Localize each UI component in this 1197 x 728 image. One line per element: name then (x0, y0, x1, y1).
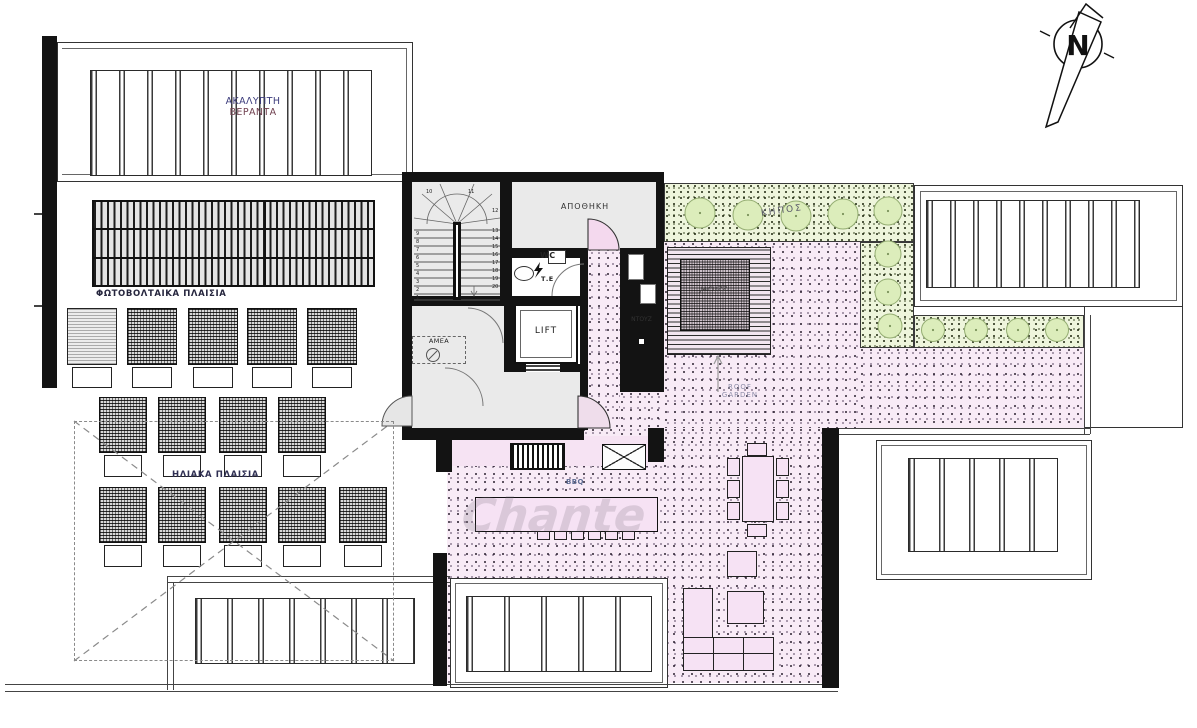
wall (402, 172, 664, 182)
dining-chair (776, 458, 789, 476)
coffee-table (727, 591, 764, 624)
corridor-ramp (588, 248, 620, 430)
stair-tread-number: 1 (416, 295, 419, 301)
wall (560, 364, 588, 372)
lounge-seat (683, 588, 713, 638)
wall (504, 306, 514, 366)
dining-chair (776, 480, 789, 498)
wc-label: WC (540, 251, 556, 260)
stair-tread-number: 4 (416, 271, 419, 277)
pv-divider (264, 200, 266, 287)
stair-tread-number: 5 (416, 263, 419, 269)
solar-panel-mount (132, 367, 172, 388)
roof-garden-east-strip (860, 348, 1084, 428)
stair-tread-number: 17 (492, 260, 498, 266)
roof-outline-dashed (74, 421, 394, 661)
stair-tread-number: 12 (492, 208, 498, 214)
boundary-line (1084, 315, 1085, 434)
roof-garden-label: ROOF GARDEN (710, 383, 770, 400)
solar-panel (127, 308, 177, 365)
veranda-label-line1: ΑΚΑΛΥΠΤΗ (178, 96, 328, 107)
boundary-line (5, 691, 838, 692)
roof-garden-area (664, 428, 822, 440)
wc-fixture (514, 266, 534, 281)
photovoltaic-label: ΦΩΤΟΒΟΛΤΑΙΚΑ ΠΛΑΙΣΙΑ (96, 289, 226, 299)
storage-room-floor (512, 182, 656, 248)
storage-label: ΑΠΟΘΗΚΗ (540, 202, 630, 211)
stair-tread-number: 18 (492, 268, 498, 274)
wall (822, 428, 839, 688)
dining-chair (776, 502, 789, 520)
boundary-line (838, 428, 1090, 429)
watermark: Chante (459, 488, 648, 542)
neighbour-block-ne-lower (1084, 307, 1183, 428)
roof-garden-label-line1: ROOF (710, 383, 770, 391)
dining-chair (727, 502, 740, 520)
jacuzzi-label: JACUZZI (681, 286, 749, 294)
stair-tread-number: 16 (492, 252, 498, 258)
roof-garden-label-line2: GARDEN (710, 391, 770, 399)
dining-chair (727, 458, 740, 476)
utility-niche (640, 284, 656, 304)
wall (580, 248, 588, 430)
photovoltaic-array (92, 200, 375, 287)
solar-panel-mount (312, 367, 352, 388)
wall (436, 430, 452, 472)
pv-divider (92, 257, 375, 259)
stair-tread-number: 15 (492, 244, 498, 250)
neighbour-s-deck (466, 596, 652, 672)
north-letter: N (1066, 29, 1089, 62)
neighbour-e-deck (908, 458, 1058, 552)
roof-floor-plan: N 1234567891011121314151617181920 ΑΚΑΛΥΠ… (0, 0, 1197, 728)
stair-tread-number: 19 (492, 276, 498, 282)
stair-tread-number: 8 (416, 239, 419, 245)
garden-strip-east (914, 315, 1084, 348)
north-arrow-icon: N (1040, 4, 1114, 127)
jacuzzi-basin (680, 259, 750, 331)
solar-panel (67, 308, 117, 365)
lift-door-line (526, 369, 560, 371)
solar-panel (188, 308, 238, 365)
wall (433, 553, 447, 686)
stair-tread-number: 3 (416, 279, 419, 285)
wall (42, 36, 57, 388)
neighbour-ne-deck (926, 200, 1140, 288)
lobby-floor (504, 372, 580, 428)
shower-label: ΝΤΟΥΖ (625, 316, 658, 323)
veranda-label: ΑΚΑΛΥΠΤΗ ΒΕΡΑΝΤΑ (178, 96, 328, 118)
garden-band-right (860, 242, 914, 348)
dining-chair (747, 524, 767, 537)
solar-panel-mount (72, 367, 112, 388)
lift-label: LIFT (520, 326, 572, 337)
wall (504, 364, 526, 372)
stair-tread-number: 2 (416, 287, 419, 293)
stair-tread-number: 14 (492, 236, 498, 242)
skylight-hatch (602, 444, 646, 470)
lift-door-line (526, 365, 560, 367)
stair-tread-number: 20 (492, 284, 498, 290)
wall (504, 296, 588, 306)
bbq-label: BBQ (566, 478, 584, 486)
stair-tread-number: 9 (416, 231, 419, 237)
wall (402, 428, 584, 440)
stair-tread-number: 11 (468, 189, 474, 195)
sofa (683, 637, 774, 671)
boundary-line (5, 684, 838, 685)
wall (648, 428, 664, 462)
solar-panel-mount (193, 367, 233, 388)
stair-tread-number: 6 (416, 255, 419, 261)
bbq-grill (510, 443, 565, 470)
wall (402, 182, 412, 398)
lobby-floor (412, 306, 504, 428)
boundary-line (838, 434, 1090, 435)
stair-tread-number: 13 (492, 228, 498, 234)
veranda-label-line2: ΒΕΡΑΝΤΑ (178, 107, 328, 118)
shower-drain (638, 338, 645, 345)
stair-tread-number: 7 (416, 247, 419, 253)
dining-table (742, 456, 774, 522)
solar-panel (307, 308, 357, 365)
amea-label: ΑΜΕΑ (414, 338, 464, 346)
stair-tread-number: 10 (426, 189, 432, 195)
dining-chair (747, 443, 767, 456)
side-table (727, 551, 757, 577)
solar-panel (247, 308, 297, 365)
boundary-line (1090, 315, 1091, 434)
utility-niche (628, 254, 644, 280)
solar-panel-mount (252, 367, 292, 388)
staircase: 1234567891011121314151617181920 (412, 182, 502, 302)
veranda-deck (90, 70, 372, 176)
pv-divider (92, 228, 375, 230)
electrical-panel-label: Τ.Ε (541, 276, 554, 284)
dining-chair (727, 480, 740, 498)
